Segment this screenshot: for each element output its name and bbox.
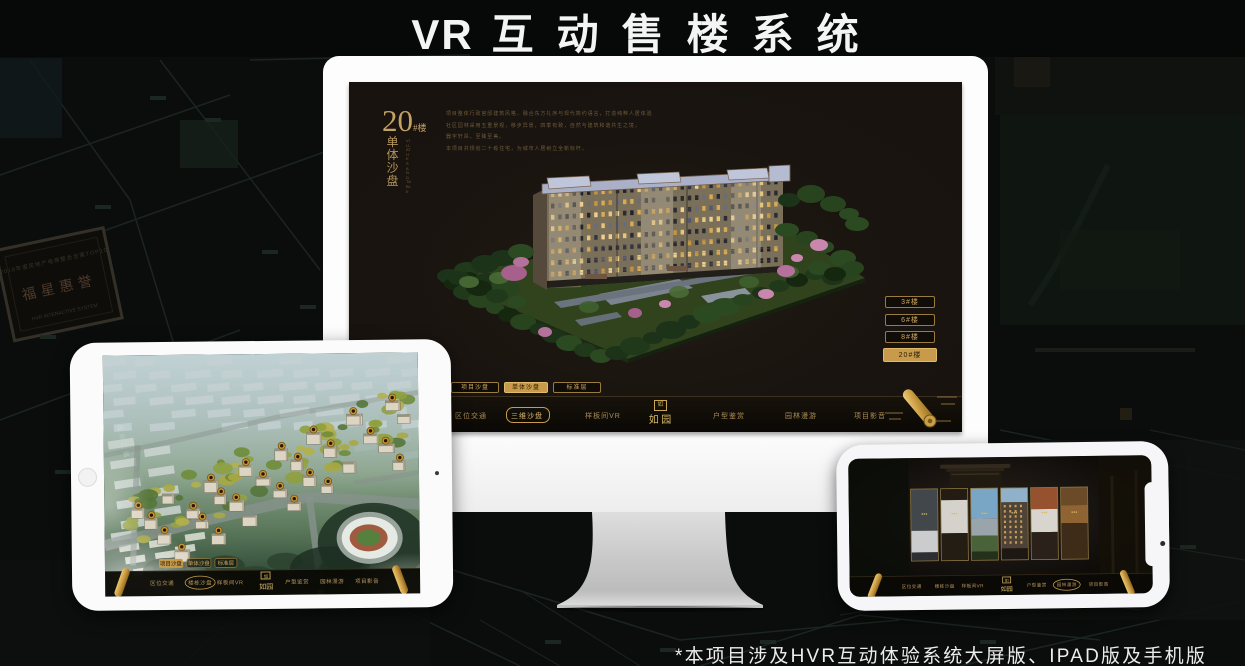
svg-text:单体沙盘: 单体沙盘 [188,559,211,567]
svg-text:●●●: ●●● [1071,510,1077,514]
svg-text:●●●: ●●● [1041,510,1047,514]
svg-text:楼栋沙盘: 楼栋沙盘 [188,579,212,587]
svg-text:●●●: ●●● [951,512,957,516]
svg-text:户型鉴赏: 户型鉴赏 [285,578,309,586]
svg-text:标准层: 标准层 [218,559,235,567]
svg-text:如: 如 [264,573,269,580]
svg-text:如: 如 [1005,577,1009,583]
svg-text:如园: 如园 [1001,585,1013,593]
svg-text:项目沙盘: 项目沙盘 [160,559,183,567]
svg-text:园林漫游: 园林漫游 [320,577,344,585]
svg-text:项目影音: 项目影音 [355,577,379,585]
svg-text:如园: 如园 [259,582,273,591]
svg-text:●●●: ●●● [921,512,927,516]
svg-text:区位交通: 区位交通 [150,579,174,587]
svg-text:●●●: ●●● [981,511,987,515]
